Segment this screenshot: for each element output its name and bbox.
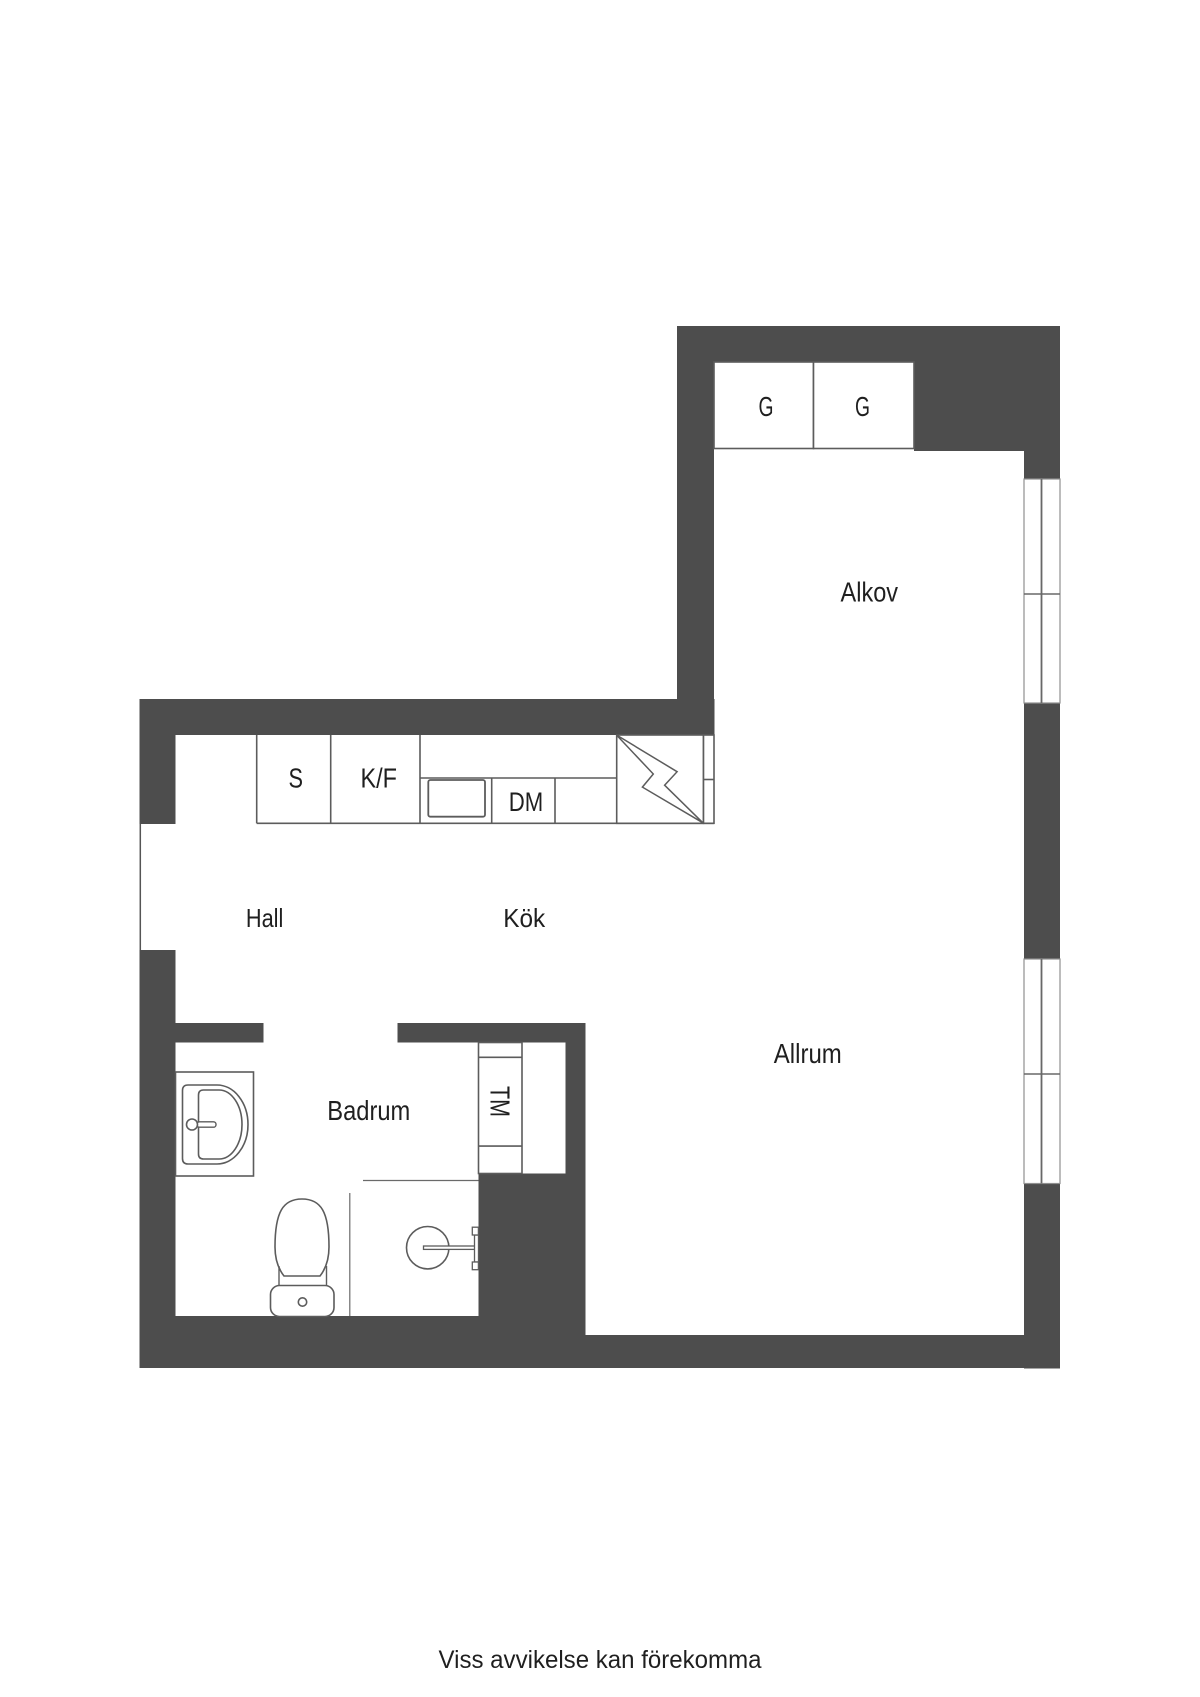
svg-text:Alkov: Alkov [841, 577, 899, 608]
svg-text:K/F: K/F [360, 763, 397, 794]
svg-text:Allrum: Allrum [774, 1038, 842, 1069]
svg-text:DM: DM [509, 787, 544, 817]
svg-text:Kök: Kök [503, 903, 546, 933]
svg-text:G: G [855, 391, 870, 422]
svg-text:S: S [288, 763, 303, 794]
svg-text:G: G [759, 391, 774, 422]
svg-text:Hall: Hall [246, 903, 284, 933]
svg-text:Viss avvikelse kan förekomma: Viss avvikelse kan förekomma [439, 1646, 762, 1674]
svg-text:Badrum: Badrum [327, 1095, 410, 1126]
svg-text:TM: TM [485, 1086, 516, 1117]
